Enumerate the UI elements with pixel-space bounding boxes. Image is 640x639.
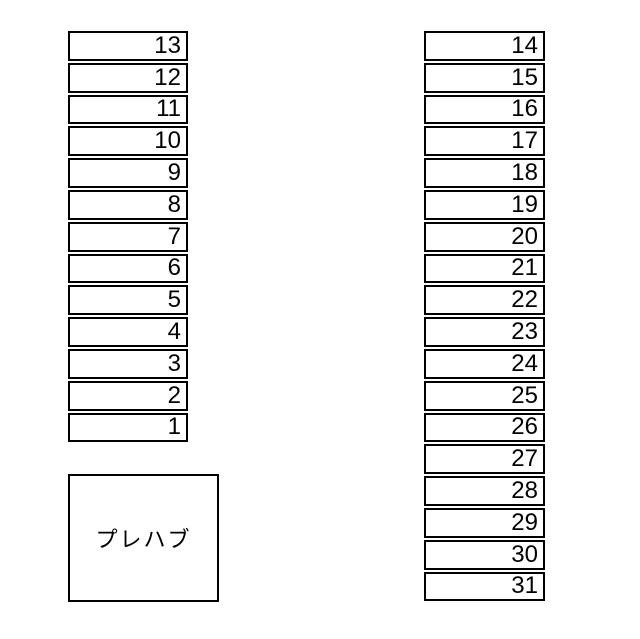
parking-space-4: 4 <box>68 317 188 347</box>
parking-space-15: 15 <box>424 63 545 93</box>
parking-space-8: 8 <box>68 190 188 220</box>
parking-space-18: 18 <box>424 158 545 188</box>
parking-space-29: 29 <box>424 508 545 538</box>
parking-space-12: 12 <box>68 63 188 93</box>
parking-space-25: 25 <box>424 381 545 411</box>
prefab-building-label: プレハブ <box>95 522 191 554</box>
parking-space-20: 20 <box>424 222 545 252</box>
parking-space-27: 27 <box>424 444 545 474</box>
parking-space-1: 1 <box>68 413 188 443</box>
parking-space-5: 5 <box>68 285 188 315</box>
parking-space-26: 26 <box>424 413 545 443</box>
parking-space-22: 22 <box>424 285 545 315</box>
parking-space-31: 31 <box>424 572 545 602</box>
left-parking-column: 13 12 11 10 9 8 7 6 5 4 3 2 1 <box>68 31 188 442</box>
parking-space-13: 13 <box>68 31 188 61</box>
parking-space-19: 19 <box>424 190 545 220</box>
parking-space-11: 11 <box>68 95 188 125</box>
parking-space-10: 10 <box>68 126 188 156</box>
parking-space-28: 28 <box>424 476 545 506</box>
prefab-building-box: プレハブ <box>68 474 219 602</box>
parking-space-3: 3 <box>68 349 188 379</box>
right-parking-column: 14 15 16 17 18 19 20 21 22 23 24 25 26 2… <box>424 31 545 601</box>
parking-space-14: 14 <box>424 31 545 61</box>
parking-space-16: 16 <box>424 95 545 125</box>
parking-space-2: 2 <box>68 381 188 411</box>
parking-layout-map: 13 12 11 10 9 8 7 6 5 4 3 2 1 14 15 16 1… <box>0 0 640 639</box>
parking-space-7: 7 <box>68 222 188 252</box>
parking-space-30: 30 <box>424 540 545 570</box>
parking-space-9: 9 <box>68 158 188 188</box>
parking-space-17: 17 <box>424 126 545 156</box>
parking-space-24: 24 <box>424 349 545 379</box>
parking-space-6: 6 <box>68 254 188 284</box>
parking-space-21: 21 <box>424 254 545 284</box>
parking-space-23: 23 <box>424 317 545 347</box>
